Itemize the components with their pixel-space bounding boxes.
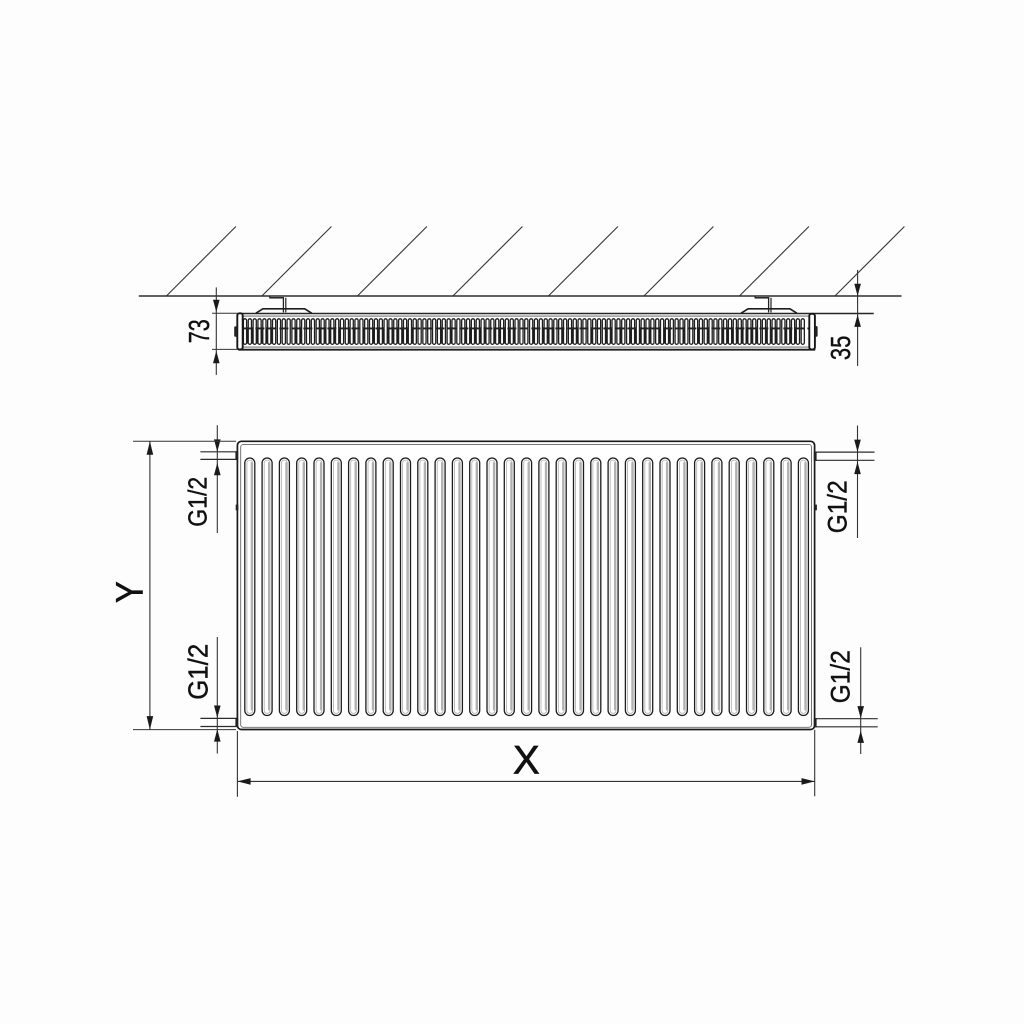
svg-text:G1/2: G1/2 — [182, 477, 212, 527]
svg-text:G1/2: G1/2 — [182, 644, 213, 700]
svg-text:73: 73 — [184, 319, 216, 343]
svg-text:X: X — [513, 739, 540, 783]
svg-text:35: 35 — [825, 336, 856, 361]
svg-text:G1/2: G1/2 — [822, 480, 852, 533]
svg-text:Y: Y — [109, 581, 151, 603]
svg-text:G1/2: G1/2 — [826, 650, 856, 703]
